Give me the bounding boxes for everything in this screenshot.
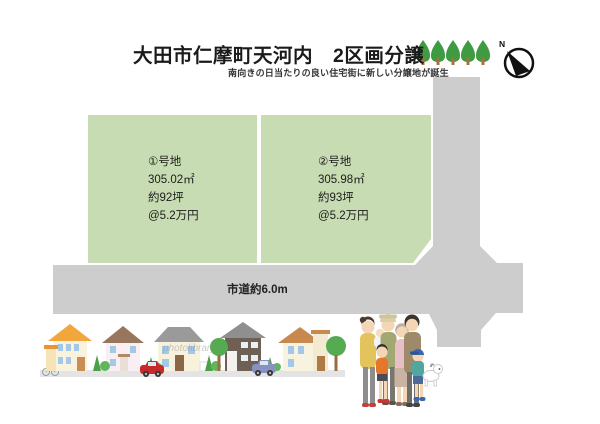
tree-icon bbox=[431, 40, 445, 65]
lot-2-area-m2: 305.98㎡ bbox=[318, 171, 369, 189]
lot-2-area-tsubo: 約93坪 bbox=[318, 189, 369, 207]
house-icon bbox=[278, 327, 330, 371]
lot-2-label: ②号地 bbox=[318, 153, 369, 171]
compass-north-label: N bbox=[499, 39, 505, 49]
lot-1-unit-price: @5.2万円 bbox=[148, 207, 199, 225]
lot-1-label: ①号地 bbox=[148, 153, 199, 171]
lot-1-info: ①号地 305.02㎡ 約92坪 @5.2万円 bbox=[148, 153, 199, 225]
compass-icon: N bbox=[499, 39, 533, 77]
flyer-page: N bbox=[0, 0, 600, 424]
road-label: 市道約6.0m bbox=[227, 281, 288, 297]
lot-2-info: ②号地 305.98㎡ 約93坪 @5.2万円 bbox=[318, 153, 369, 225]
street-baseline bbox=[40, 370, 345, 377]
lot-1-area-m2: 305.02㎡ bbox=[148, 171, 199, 189]
page-subtitle: 南向きの日当たりの良い住宅街に新しい分譲地が誕生 bbox=[228, 66, 449, 79]
page-title: 大田市仁摩町天河内 2区画分譲 bbox=[133, 39, 424, 68]
tree-icon bbox=[461, 40, 475, 65]
trees-row bbox=[416, 40, 490, 65]
tree-icon bbox=[446, 40, 460, 65]
lot-2-unit-price: @5.2万円 bbox=[318, 207, 369, 225]
stock-watermark: photolibrary bbox=[163, 343, 215, 354]
tree-icon bbox=[476, 40, 490, 65]
family-illustration bbox=[360, 314, 443, 407]
lot-1-area-tsubo: 約92坪 bbox=[148, 189, 199, 207]
dog-icon bbox=[423, 364, 443, 386]
house-icon bbox=[44, 324, 92, 371]
